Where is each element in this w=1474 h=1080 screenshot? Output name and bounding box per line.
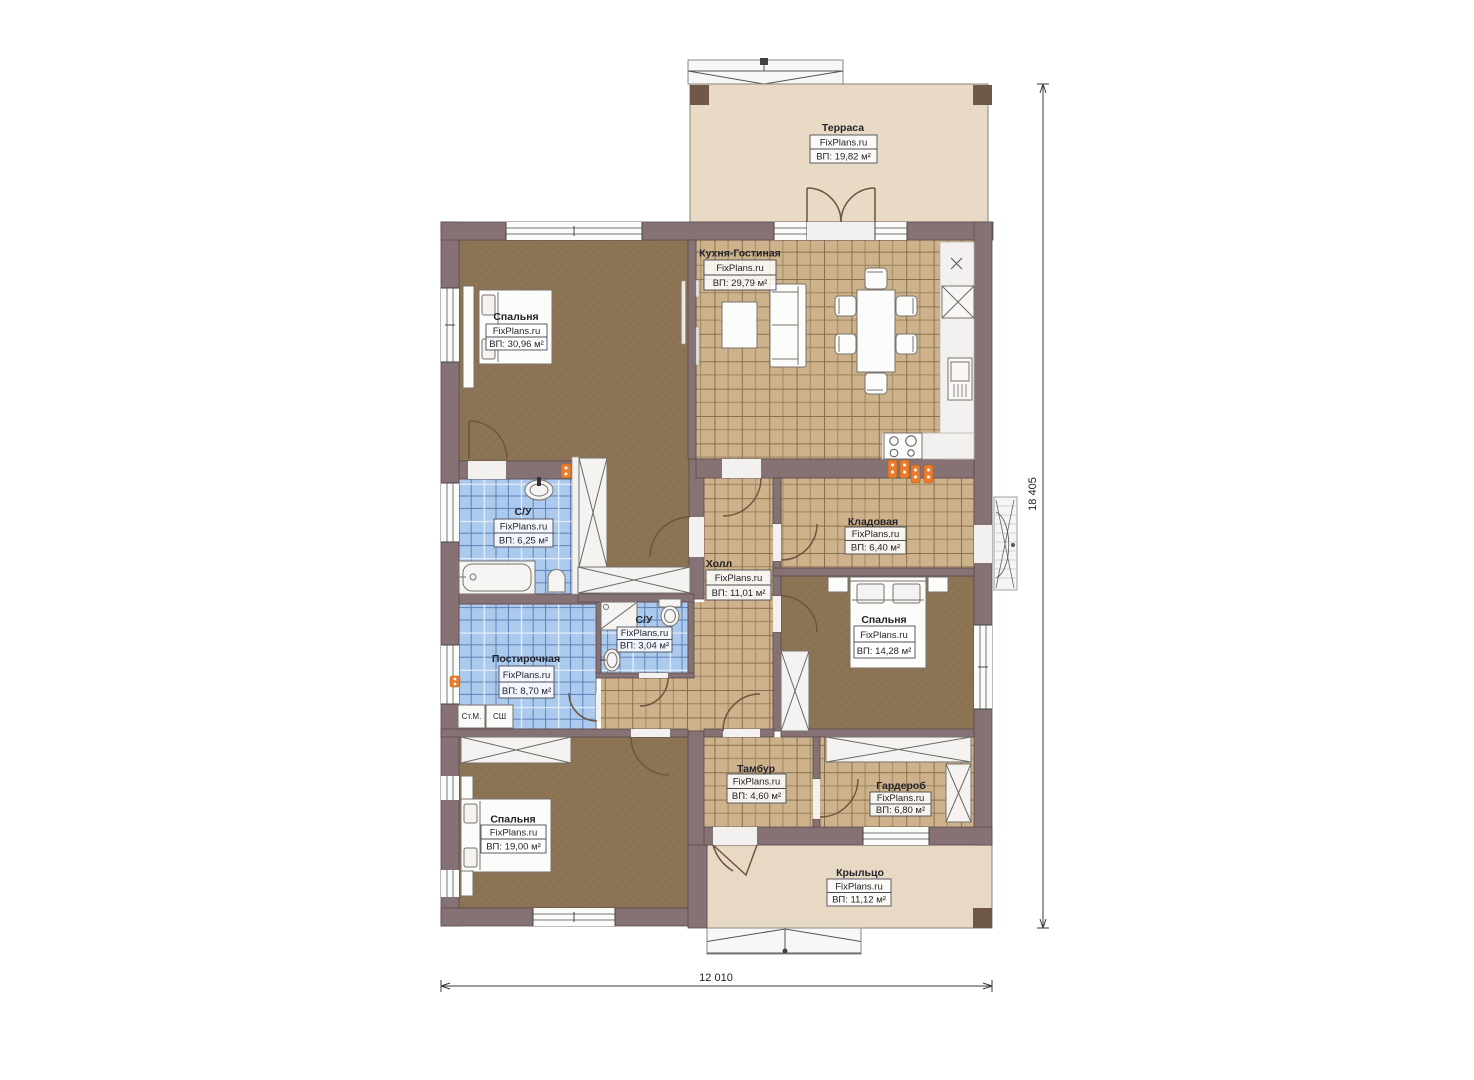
- svg-text:FixPlans.ru: FixPlans.ru: [715, 573, 763, 584]
- svg-text:ВП: 6,80 м²: ВП: 6,80 м²: [876, 805, 925, 816]
- svg-text:FixPlans.ru: FixPlans.ru: [820, 138, 868, 149]
- svg-text:Тамбур: Тамбур: [737, 763, 775, 775]
- svg-text:Постирочная: Постирочная: [492, 653, 560, 665]
- svg-text:ВП: 11,12 м²: ВП: 11,12 м²: [832, 895, 886, 906]
- svg-text:ВП: 30,96 м²: ВП: 30,96 м²: [489, 339, 544, 350]
- svg-text:ВП: 11,01 м²: ВП: 11,01 м²: [712, 588, 766, 599]
- svg-text:Ст.М.: Ст.М.: [462, 712, 482, 721]
- svg-text:Спальня: Спальня: [490, 814, 535, 826]
- svg-text:FixPlans.ru: FixPlans.ru: [716, 263, 764, 274]
- svg-text:Терраса: Терраса: [822, 122, 864, 134]
- svg-text:ВП: 19,82 м²: ВП: 19,82 м²: [816, 152, 871, 163]
- svg-text:Холл: Холл: [706, 558, 732, 570]
- svg-text:FixPlans.ru: FixPlans.ru: [852, 529, 900, 540]
- svg-text:Кладовая: Кладовая: [848, 516, 898, 528]
- svg-text:FixPlans.ru: FixPlans.ru: [733, 777, 781, 788]
- svg-text:Спальня: Спальня: [493, 311, 538, 323]
- svg-text:12 010: 12 010: [699, 972, 733, 984]
- svg-text:FixPlans.ru: FixPlans.ru: [835, 882, 883, 893]
- svg-text:FixPlans.ru: FixPlans.ru: [490, 828, 538, 839]
- svg-text:FixPlans.ru: FixPlans.ru: [500, 522, 548, 533]
- svg-text:ВП: 6,25 м²: ВП: 6,25 м²: [499, 536, 548, 547]
- svg-text:18 405: 18 405: [1027, 477, 1039, 511]
- svg-text:С/У: С/У: [514, 506, 532, 518]
- svg-text:Кухня-Гостиная: Кухня-Гостиная: [699, 248, 781, 260]
- svg-text:ВП: 19,00 м²: ВП: 19,00 м²: [486, 842, 541, 853]
- svg-text:FixPlans.ru: FixPlans.ru: [877, 793, 925, 804]
- svg-text:FixPlans.ru: FixPlans.ru: [493, 326, 541, 337]
- svg-text:ВП: 29,79 м²: ВП: 29,79 м²: [713, 278, 768, 289]
- svg-text:ВП: 3,04 м²: ВП: 3,04 м²: [620, 641, 669, 652]
- svg-text:FixPlans.ru: FixPlans.ru: [860, 630, 908, 641]
- svg-text:FixPlans.ru: FixPlans.ru: [621, 628, 669, 639]
- svg-text:СШ: СШ: [493, 712, 506, 721]
- svg-text:ВП: 6,40 м²: ВП: 6,40 м²: [851, 543, 900, 554]
- svg-text:ВП: 4,60 м²: ВП: 4,60 м²: [732, 791, 781, 802]
- svg-text:Гардероб: Гардероб: [876, 780, 926, 792]
- svg-text:ВП: 14,28 м²: ВП: 14,28 м²: [857, 646, 912, 657]
- svg-text:Крыльцо: Крыльцо: [836, 867, 884, 879]
- svg-text:FixPlans.ru: FixPlans.ru: [503, 670, 551, 681]
- svg-text:С/У: С/У: [635, 614, 653, 626]
- svg-text:ВП: 8,70 м²: ВП: 8,70 м²: [502, 686, 551, 697]
- svg-text:Спальня: Спальня: [861, 614, 906, 626]
